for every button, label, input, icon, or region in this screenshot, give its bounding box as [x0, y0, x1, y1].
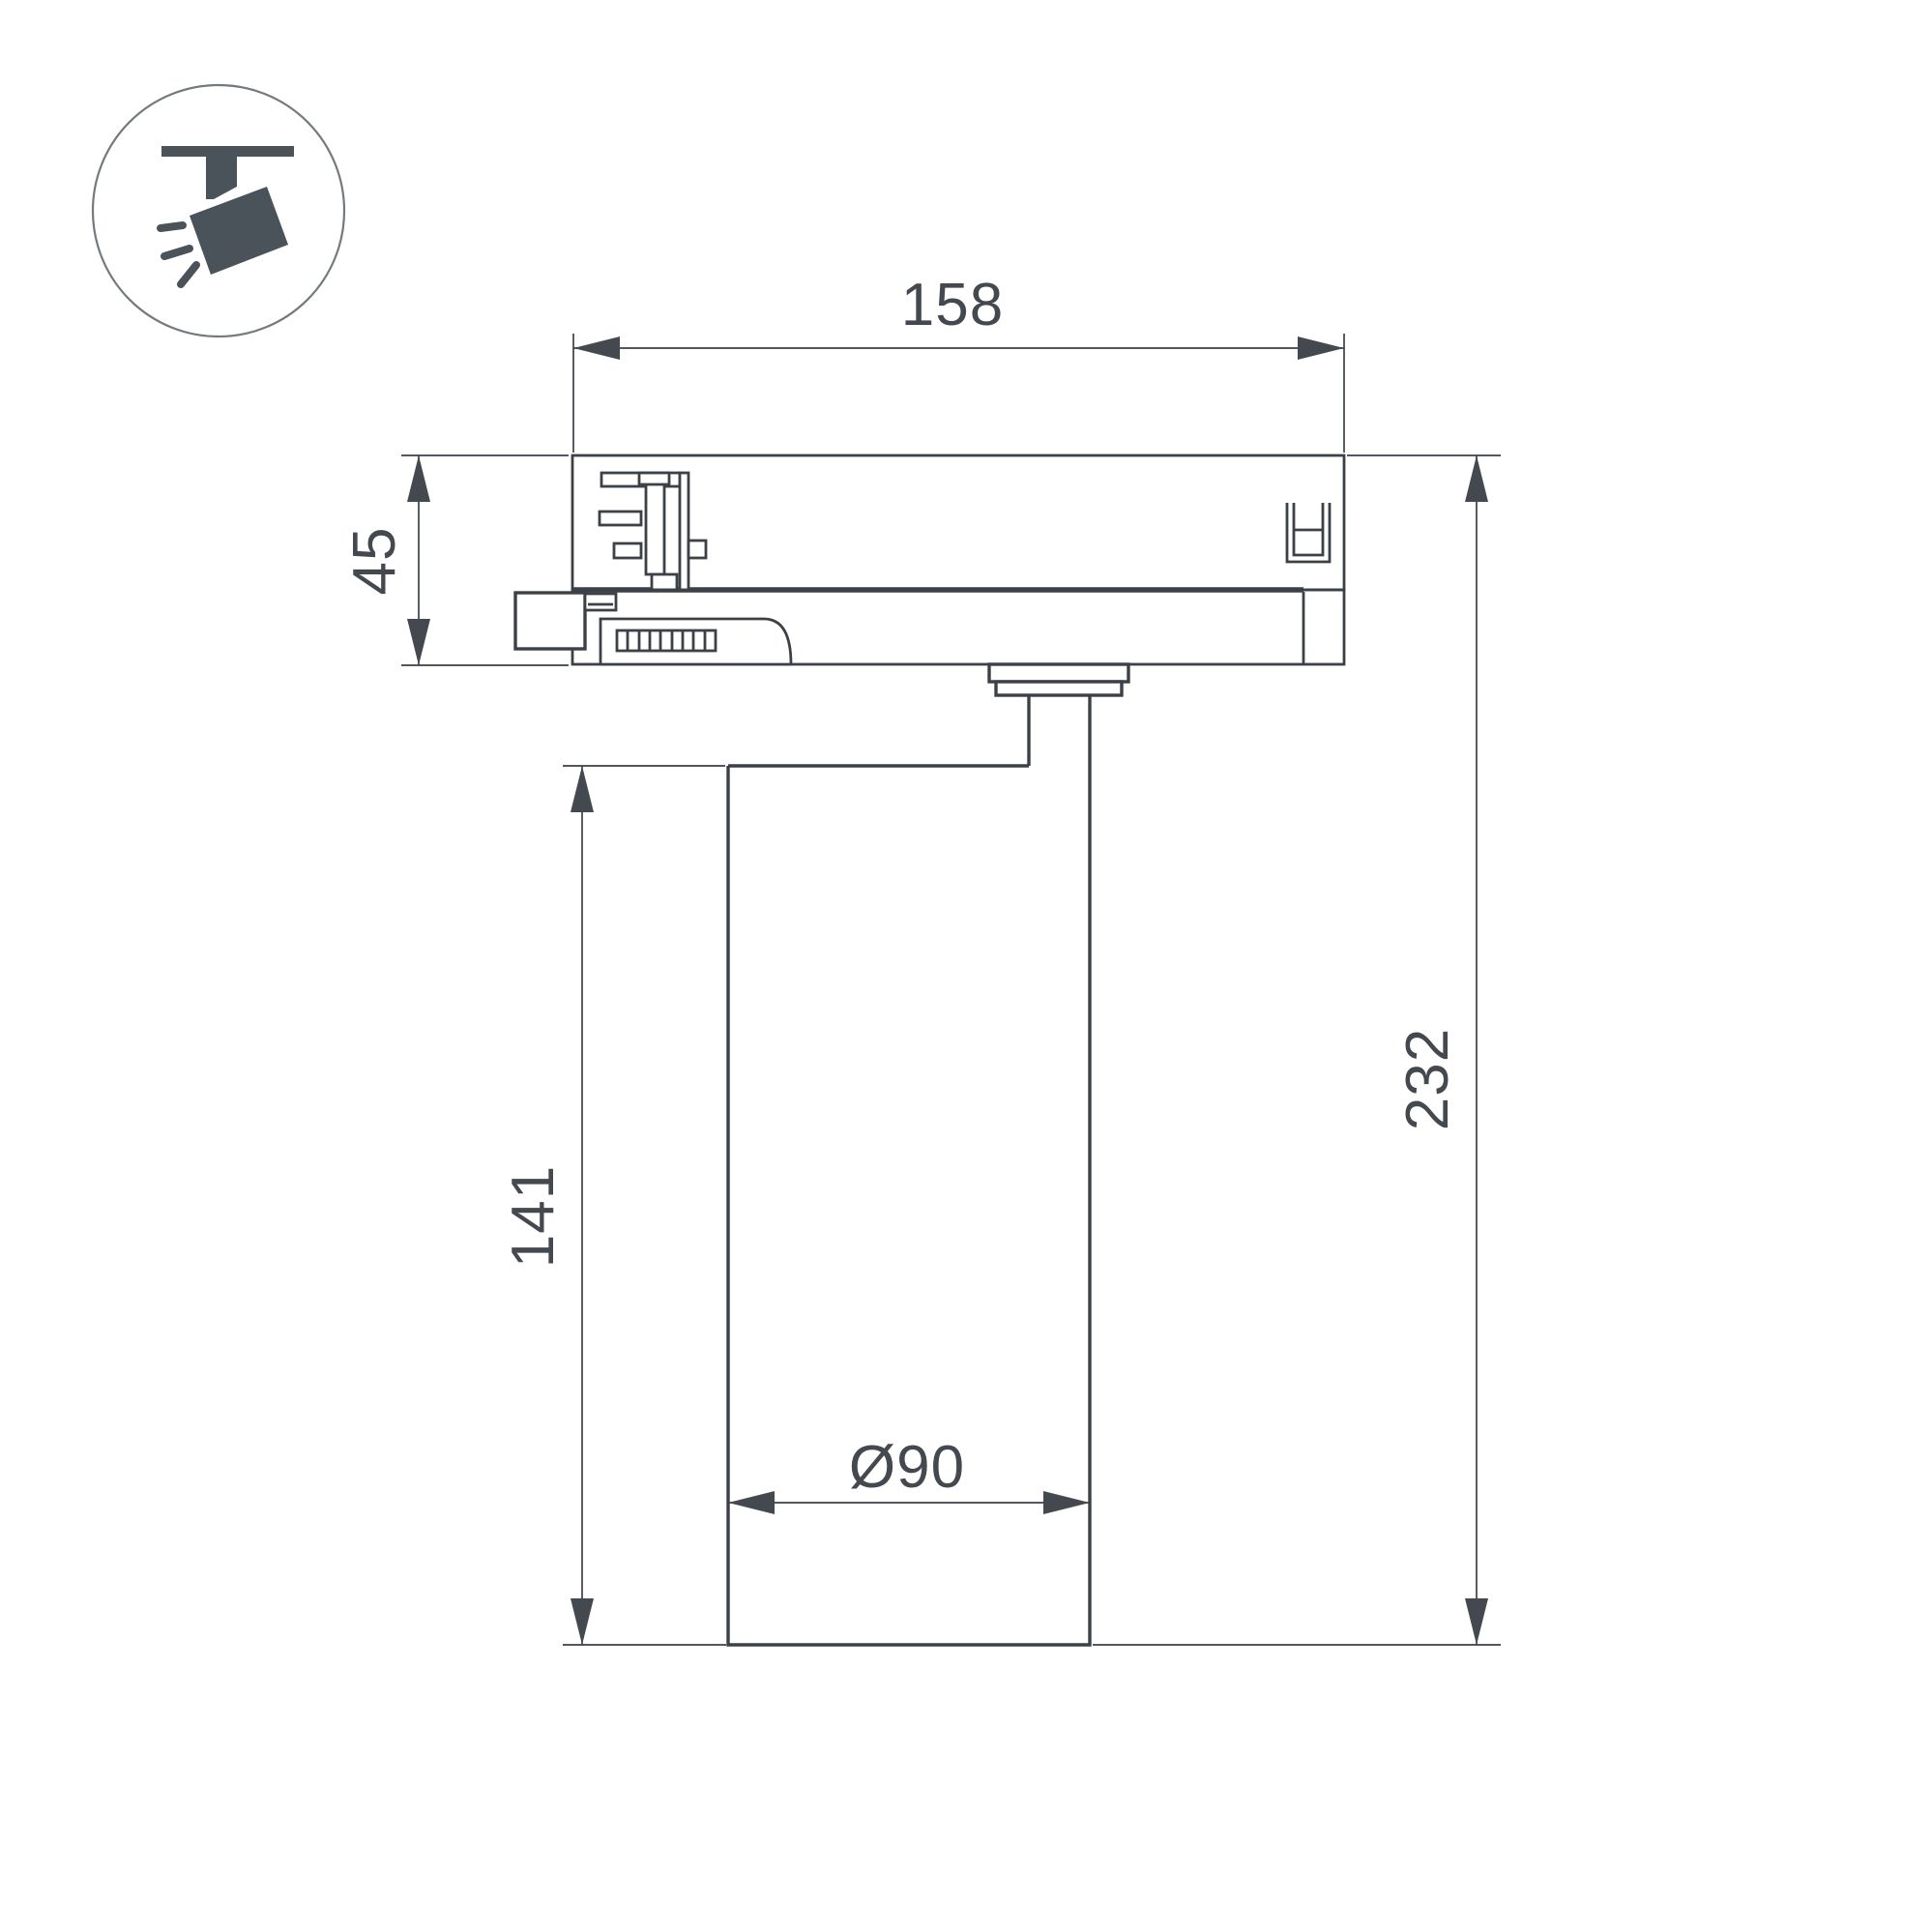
contact-cap — [639, 473, 669, 484]
dimension-label: 45 — [341, 527, 408, 596]
adapter-box — [572, 455, 1344, 590]
adapter-housing — [515, 590, 1344, 664]
dimension-label: Ø90 — [849, 1434, 965, 1501]
arrowhead — [1465, 1598, 1488, 1645]
arrowhead — [571, 766, 594, 812]
contact-wall — [680, 473, 688, 590]
mount-connector — [989, 664, 1128, 766]
dimension-adapter-width: 158 — [573, 272, 1344, 453]
latch-body — [515, 593, 585, 649]
contact-bar-middle — [600, 512, 641, 525]
connector-step-2 — [996, 682, 1122, 695]
technical-drawing-canvas: 158 45 141 232 Ø90 — [0, 0, 1932, 1932]
arrowhead — [1298, 337, 1344, 360]
lamp-body — [728, 766, 1090, 1645]
dimension-label: 141 — [500, 1165, 567, 1268]
contact-assembly — [600, 473, 706, 590]
drawing-page: 158 45 141 232 Ø90 — [0, 0, 1932, 1932]
clamp-detail — [1287, 503, 1330, 562]
arrowhead — [407, 455, 430, 502]
ratchet-outline — [617, 630, 716, 651]
dimension-label: 232 — [1394, 1028, 1461, 1130]
icon-light-ray — [161, 225, 183, 228]
arrowhead — [571, 1598, 594, 1645]
dimension-body-height: 141 — [500, 766, 726, 1645]
contact-bar-bottom — [614, 543, 641, 558]
product-icon — [93, 85, 344, 337]
arrowhead — [407, 619, 430, 665]
contact-foot — [652, 574, 677, 590]
ratchet-strip — [617, 630, 716, 651]
contact-stem — [646, 476, 664, 574]
latch-tab — [585, 594, 616, 610]
dimension-label: 158 — [901, 272, 1004, 338]
arrowhead — [1465, 455, 1488, 502]
contact-protrusion — [688, 541, 706, 558]
lamp-body-outline — [728, 766, 1090, 1645]
arrowhead — [573, 337, 620, 360]
connector-step-1 — [989, 664, 1128, 682]
icon-track-bar — [161, 146, 294, 157]
dimension-overall-height: 232 — [1093, 455, 1501, 1645]
connector-stem — [1029, 695, 1090, 766]
